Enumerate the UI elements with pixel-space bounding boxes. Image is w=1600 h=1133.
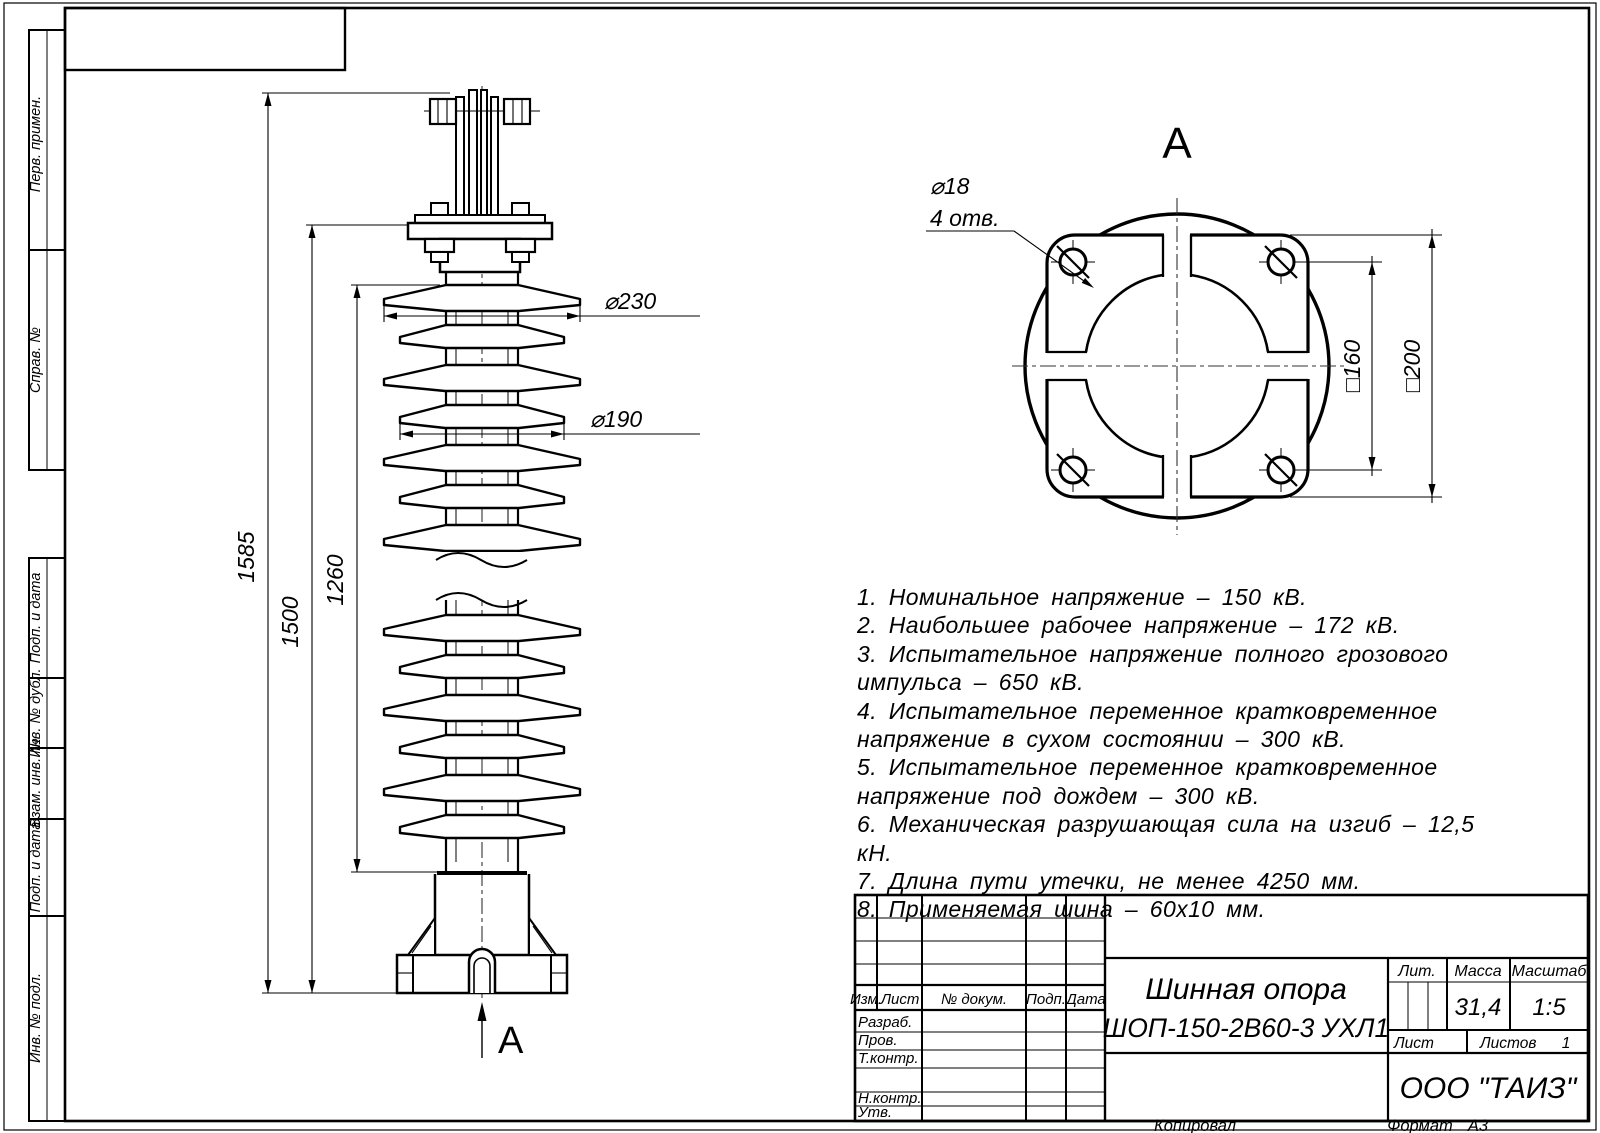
mass-label: Масса [1454, 963, 1501, 980]
arrowhead [400, 431, 413, 438]
dim-square-200: □200 [1399, 340, 1425, 392]
tech-requirement-1: 1. Номинальное напряжение – 150 кВ. [857, 583, 1512, 611]
arrowhead [1369, 457, 1376, 470]
view-direction-arrow: А [478, 1002, 525, 1062]
role-utv: Утв. [857, 1104, 892, 1121]
arrowhead [265, 980, 272, 993]
rev-header-podp: Подп. [1026, 991, 1066, 1008]
drawing-canvas: Перв. примен. Справ. № Подп. и дата Инв.… [0, 0, 1600, 1133]
arrowhead [567, 313, 580, 320]
tech-requirement-5: 5. Испытательное переменное кратковремен… [857, 753, 1512, 810]
dim-square-160: □160 [1339, 340, 1365, 392]
margin-labels: Перв. примен. Справ. № Подп. и дата Инв.… [28, 96, 44, 1063]
top-left-stamp [65, 8, 345, 70]
role-razrab: Разраб. [858, 1014, 912, 1031]
sheet-label: Лист [1393, 1035, 1434, 1052]
tech-requirement-3: 3. Испытательное напряжение полного гроз… [857, 640, 1512, 697]
dim-1260: 1260 [322, 554, 348, 605]
view-a: А [926, 119, 1442, 535]
role-prov: Пров. [858, 1032, 898, 1049]
margin-label-vzam-inv: Взам. инв. № [28, 738, 44, 828]
clamp-bolt-left [430, 99, 456, 124]
mass-value: 31,4 [1455, 994, 1502, 1021]
shed-large [384, 365, 580, 391]
shed-small [400, 655, 564, 678]
shed-small [400, 405, 564, 428]
role-tkontr: Т.контр. [858, 1050, 919, 1067]
tech-requirement-7: 7. Длина пути утечки, не менее 4250 мм. [857, 867, 1512, 895]
shed-large [384, 285, 580, 311]
arrowhead [309, 225, 316, 238]
shed-small [400, 325, 564, 348]
shed-large [384, 615, 580, 641]
drawing-sheet: Перв. примен. Справ. № Подп. и дата Инв.… [0, 0, 1600, 1133]
gusset-left [408, 918, 435, 955]
margin-label-inv-podl: Инв. № подл. [28, 973, 44, 1063]
shed-small [400, 485, 564, 508]
tech-requirement-8: 8. Применяемая шина – 60х10 мм. [857, 895, 1512, 923]
clamp-bolt-right [504, 99, 530, 124]
gusset-right [529, 918, 556, 955]
shed-large [384, 775, 580, 801]
rev-header-list: Лист [880, 991, 920, 1008]
shed-small [400, 735, 564, 758]
shed-small [400, 815, 564, 838]
title-block: Изм. Лист № докум. Подп. Дата Разраб. Пр… [850, 895, 1588, 1121]
margin-label-podp-data-2: Подп. и дата [28, 822, 44, 913]
sheets-label: Листов [1479, 1035, 1536, 1052]
shed-large [384, 695, 580, 721]
hole-dia-label: ⌀18 [930, 173, 970, 199]
dim-dia-190: ⌀190 [590, 406, 642, 432]
arrowhead [384, 313, 397, 320]
copied-label: Копировал [1154, 1117, 1236, 1133]
lit-label: Лит. [1397, 963, 1435, 980]
margin-label-sprav-n: Справ. № [28, 327, 44, 393]
scale-label: Масштаб [1512, 963, 1588, 980]
rev-header-izm: Изм. [850, 991, 882, 1008]
ground-slot [469, 949, 495, 993]
hole-count-label: 4 отв. [930, 205, 1000, 231]
tech-requirement-4: 4. Испытательное переменное кратковремен… [857, 697, 1512, 754]
arrowhead [354, 859, 361, 872]
scale-value: 1:5 [1532, 994, 1566, 1021]
company-name: ООО "ТАИЗ" [1400, 1072, 1578, 1105]
doc-name-line1: Шинная опора [1145, 973, 1347, 1006]
arrowhead [309, 980, 316, 993]
sheets-value: 1 [1562, 1035, 1571, 1052]
dim-1500: 1500 [277, 596, 303, 647]
view-a-title: А [1162, 119, 1192, 168]
tech-requirement-6: 6. Механическая разрушающая сила на изги… [857, 810, 1512, 867]
clamp-flange [408, 223, 552, 239]
arrowhead [265, 93, 272, 106]
technical-requirements: 1. Номинальное напряжение – 150 кВ.2. На… [857, 583, 1512, 924]
arrowhead [1429, 484, 1436, 497]
shed-large [384, 445, 580, 471]
front-view: А 1585 1500 1260 ⌀230 ⌀190 [233, 86, 700, 1062]
break-lines [436, 552, 528, 607]
arrowhead [1429, 235, 1436, 248]
margin-label-perv-primen: Перв. примен. [28, 96, 44, 192]
tech-requirement-2: 2. Наибольшее рабочее напряжение – 172 к… [857, 611, 1512, 639]
format-label: Формат [1387, 1117, 1453, 1133]
margin-label-podp-data-1: Подп. и дата [28, 573, 44, 664]
view-arrow-head [478, 1002, 487, 1021]
dim-dia-230: ⌀230 [604, 288, 656, 314]
arrowhead [354, 285, 361, 298]
view-arrow-label: А [498, 1020, 524, 1062]
doc-name-line2: ШОП-150-2В60-3 УХЛ1 [1103, 1013, 1389, 1043]
bus-clamp [408, 90, 552, 272]
format-value: А3 [1467, 1117, 1489, 1133]
dim-1585: 1585 [233, 531, 259, 582]
arrowhead [1369, 262, 1376, 275]
arrowhead [551, 431, 564, 438]
rev-header-data: Дата [1064, 991, 1106, 1008]
shed-large [384, 525, 580, 551]
rev-header-dokum: № докум. [941, 991, 1007, 1008]
